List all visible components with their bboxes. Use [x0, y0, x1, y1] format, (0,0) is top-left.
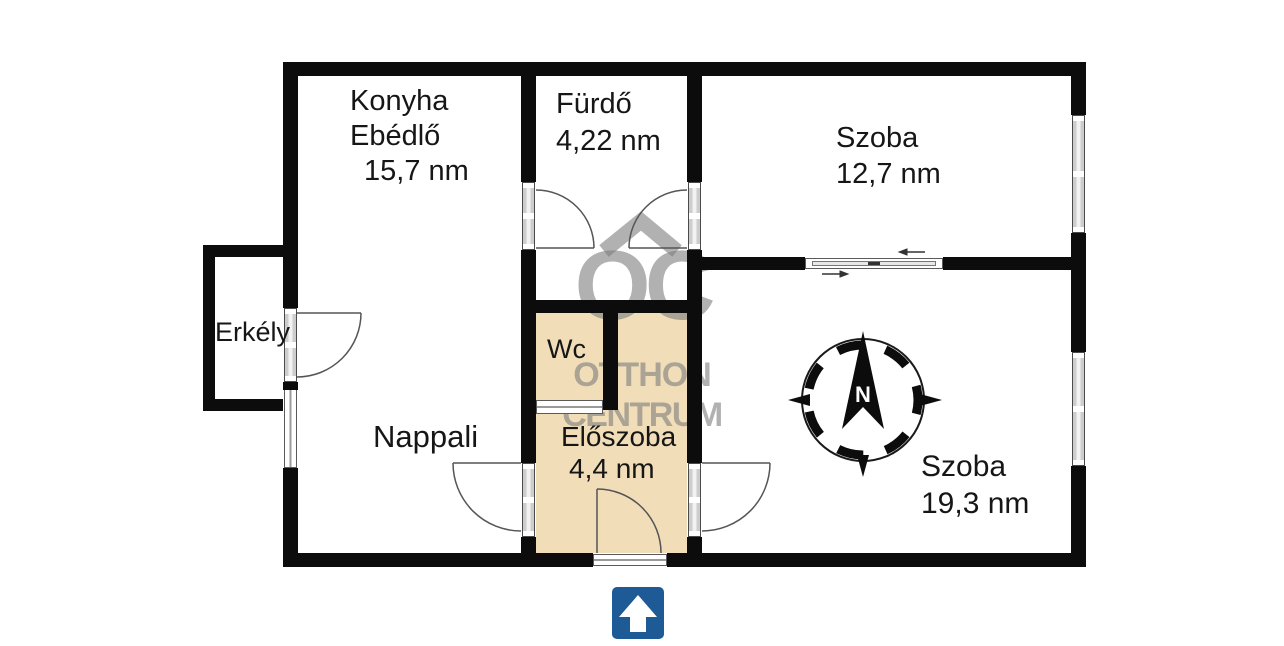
floor-plan: OC OTTHON CENTRUM	[0, 0, 1284, 646]
compass-north-label: N	[855, 382, 871, 407]
entrance-arrow-icon	[612, 587, 664, 639]
compass-icon: N	[788, 331, 942, 477]
plan-symbols: N	[0, 0, 1284, 646]
